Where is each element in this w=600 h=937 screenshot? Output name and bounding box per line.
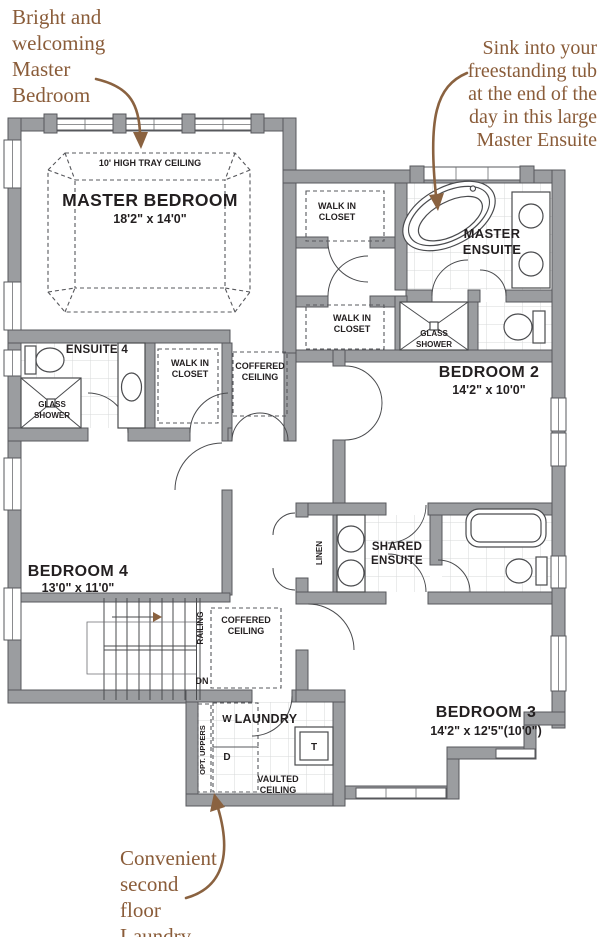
annotation-line: at the end of the	[427, 83, 597, 106]
annotation-line: Master	[12, 56, 105, 82]
tray-ceiling	[48, 153, 250, 312]
annotation-master-bedroom: Bright and welcoming Master Bedroom	[12, 4, 105, 108]
master-bedroom-dims: 18'2" x 14'0"	[113, 212, 186, 226]
floorplan-page: Bright and welcoming Master Bedroom Sink…	[0, 0, 600, 937]
railing-label: RAILING	[196, 612, 205, 645]
annotation-line: Master Ensuite	[427, 129, 597, 152]
walk-in-closet3-label: CLOSET	[172, 369, 209, 379]
bedroom2-label: BEDROOM 2	[439, 364, 540, 381]
vaulted-ceiling-label: VAULTED	[257, 774, 299, 784]
ensuite4-toilet	[25, 346, 64, 374]
shared-ensuite-label: SHARED	[372, 541, 422, 553]
laundry-tub-label: T	[311, 742, 317, 753]
annotation-line: Bedroom	[12, 82, 105, 108]
master-bedroom-label: MASTER BEDROOM	[62, 190, 238, 210]
shared-toilet	[506, 557, 547, 585]
master-wc-toilet	[504, 311, 545, 343]
walk-in-closet1-label: CLOSET	[319, 212, 356, 222]
shared-tub	[466, 509, 546, 547]
laundry-label: LAUNDRY	[235, 712, 298, 726]
annotation-line: Laundry	[120, 923, 217, 937]
shared-ensuite-label: ENSUITE	[371, 555, 423, 567]
bedroom2-dims: 14'2" x 10'0"	[452, 383, 525, 397]
washer-label: W	[222, 714, 232, 725]
bedroom4-dims: 13'0" x 11'0"	[42, 581, 115, 595]
master-shower-label: SHOWER	[416, 340, 452, 349]
coffered-ceiling1-label: COFFERED	[235, 361, 285, 371]
annotation-line: Sink into your	[427, 37, 597, 60]
walk-in-closet1-label: WALK IN	[318, 201, 356, 211]
walk-in-closet3-label: WALK IN	[171, 358, 209, 368]
walk-in-closet2-label: WALK IN	[333, 313, 371, 323]
bedroom3-label: BEDROOM 3	[436, 704, 537, 721]
opt-uppers-label: OPT. UPPERS	[198, 725, 207, 775]
annotation-master-ensuite: Sink into your freestanding tub at the e…	[427, 37, 597, 152]
bedroom4-label: BEDROOM 4	[28, 563, 129, 580]
ensuite4-label: ENSUITE 4	[66, 344, 128, 356]
master-ensuite-label: ENSUITE	[463, 242, 521, 257]
dryer-label: D	[223, 752, 230, 763]
tray-ceiling-label: 10' HIGH TRAY CEILING	[99, 158, 201, 168]
walk-in-closet2-label: CLOSET	[334, 324, 371, 334]
vaulted-ceiling-label: CEILING	[260, 785, 297, 795]
master-bedroom-arrowhead	[133, 132, 148, 149]
ensuite4-shower-label: SHOWER	[34, 411, 70, 420]
annotation-line: second	[120, 871, 217, 897]
ensuite4-shower-label: GLASS	[38, 400, 66, 409]
dn-label: DN	[196, 676, 209, 686]
annotation-laundry: Convenient second floor Laundry	[120, 845, 217, 937]
annotation-line: welcoming	[12, 30, 105, 56]
master-ensuite-label: MASTER	[464, 226, 521, 241]
annotation-line: day in this large	[427, 106, 597, 129]
master-shower-label: GLASS	[420, 329, 448, 338]
annotation-line: Bright and	[12, 4, 105, 30]
linen-label: LINEN	[315, 541, 324, 565]
coffered-ceiling2-label: CEILING	[228, 626, 265, 636]
coffered-ceiling2-label: COFFERED	[221, 615, 271, 625]
shared-vanity	[337, 515, 365, 592]
bedroom3-dims: 14'2" x 12'5"(10'0")	[430, 724, 542, 738]
annotation-line: freestanding tub	[427, 60, 597, 83]
annotation-line: Convenient	[120, 845, 217, 871]
coffered-ceiling1-label: CEILING	[242, 372, 279, 382]
annotation-line: floor	[120, 897, 217, 923]
staircase	[87, 598, 200, 700]
